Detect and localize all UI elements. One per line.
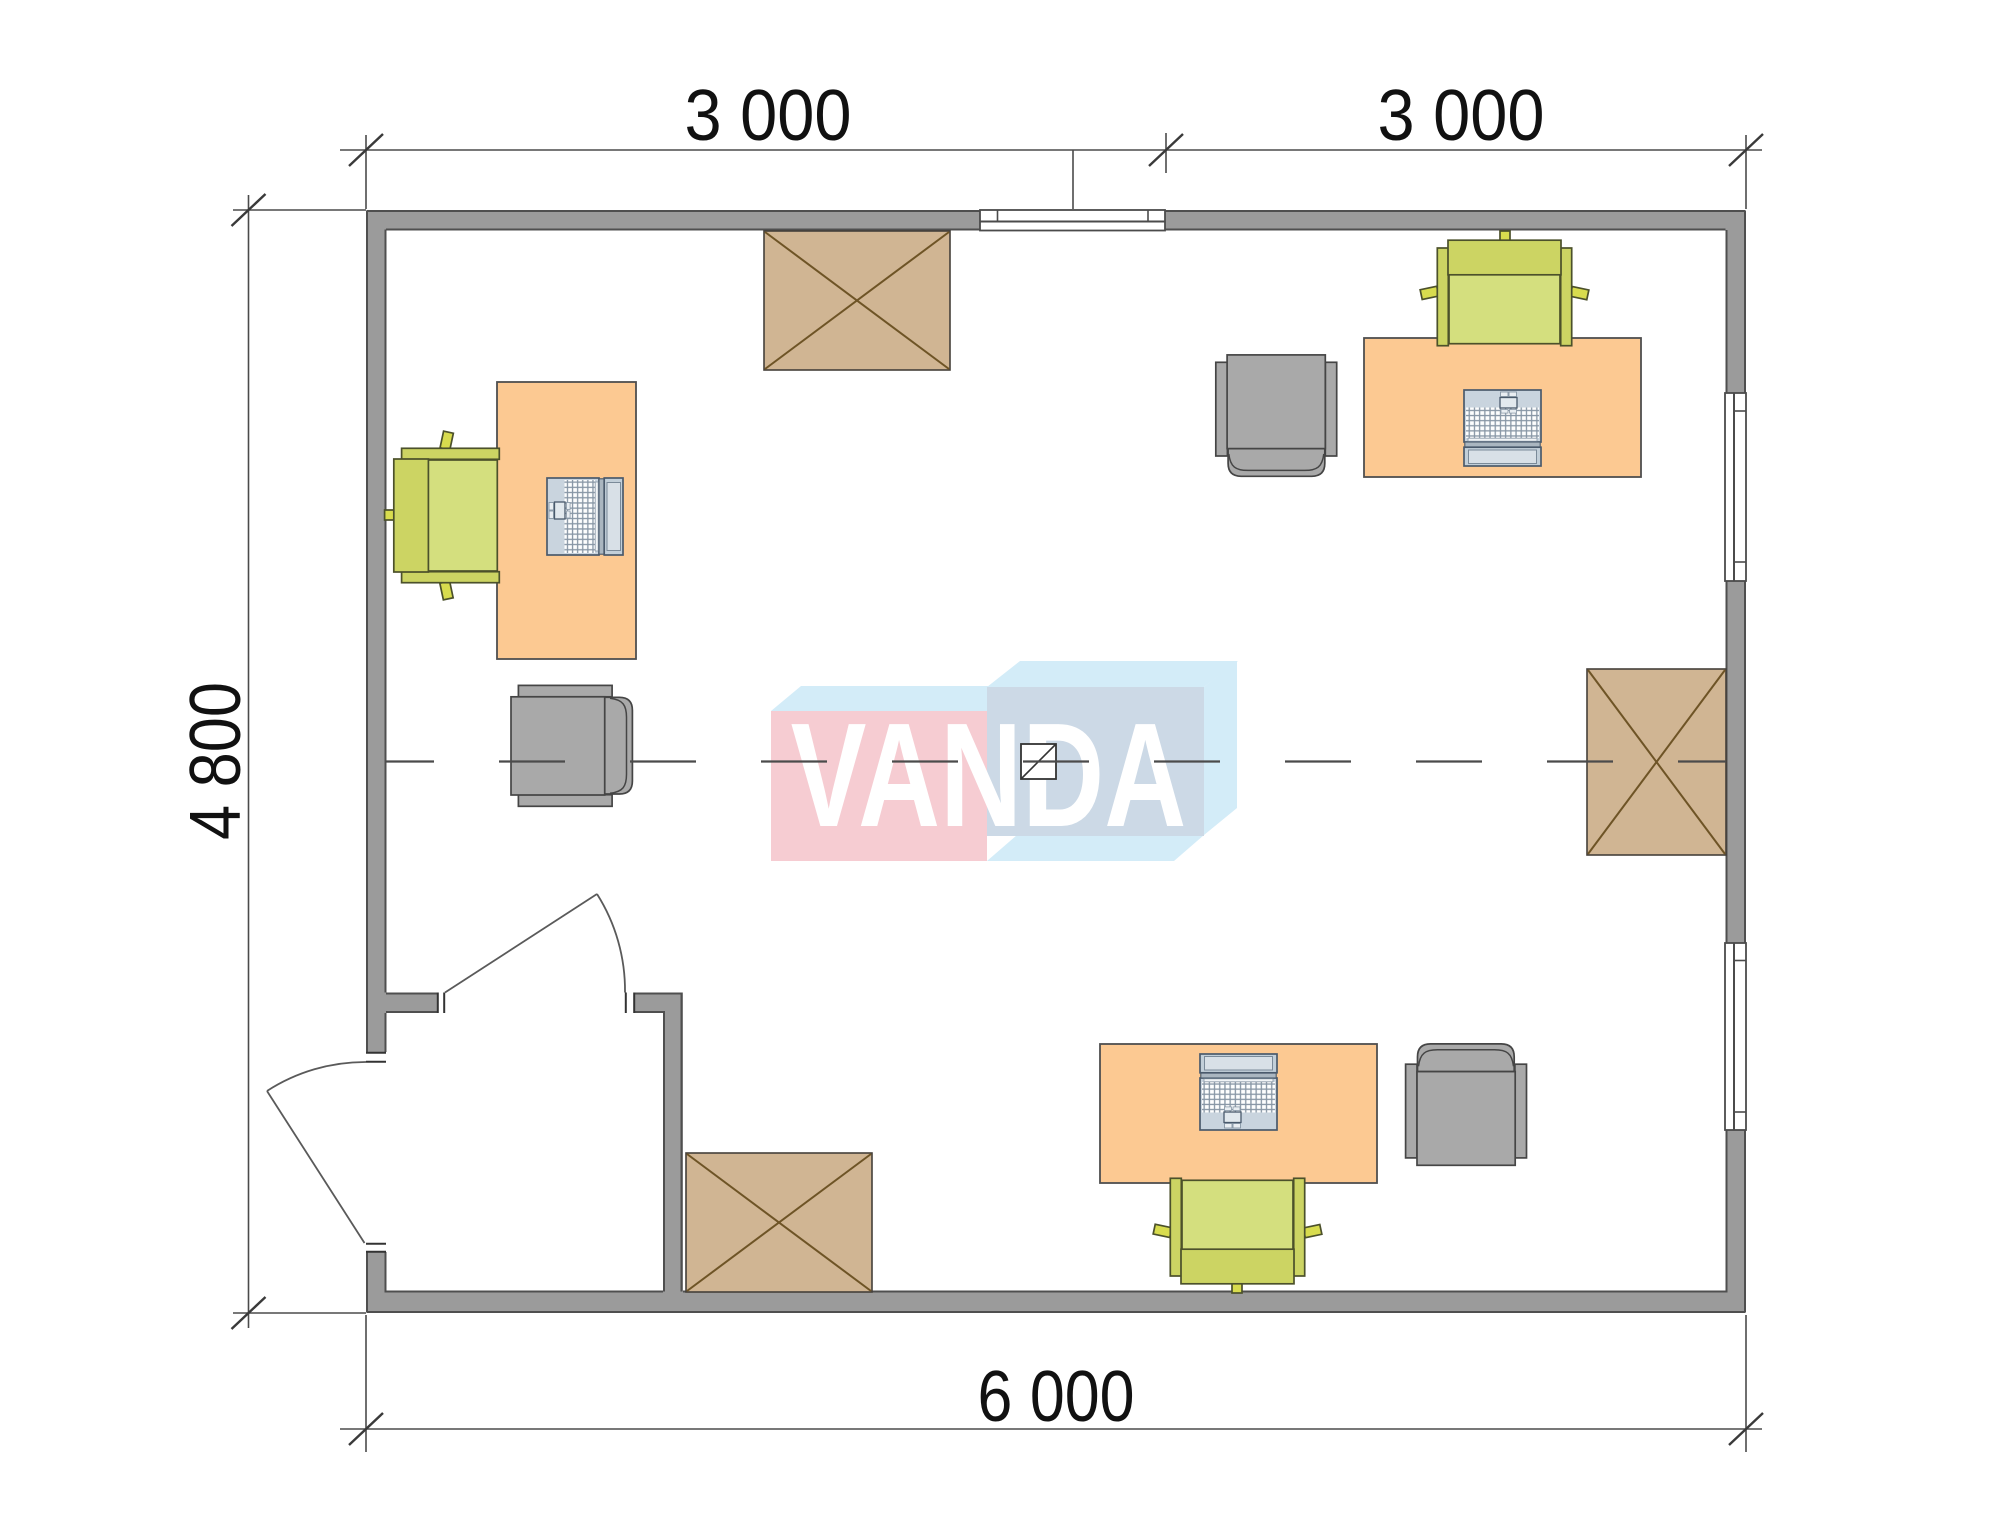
svg-text:3 000: 3 000 <box>685 76 852 156</box>
svg-text:4 800: 4 800 <box>176 682 256 840</box>
svg-text:6 000: 6 000 <box>978 1357 1135 1437</box>
svg-text:VANDA: VANDA <box>791 693 1187 858</box>
svg-text:3 000: 3 000 <box>1378 76 1545 156</box>
